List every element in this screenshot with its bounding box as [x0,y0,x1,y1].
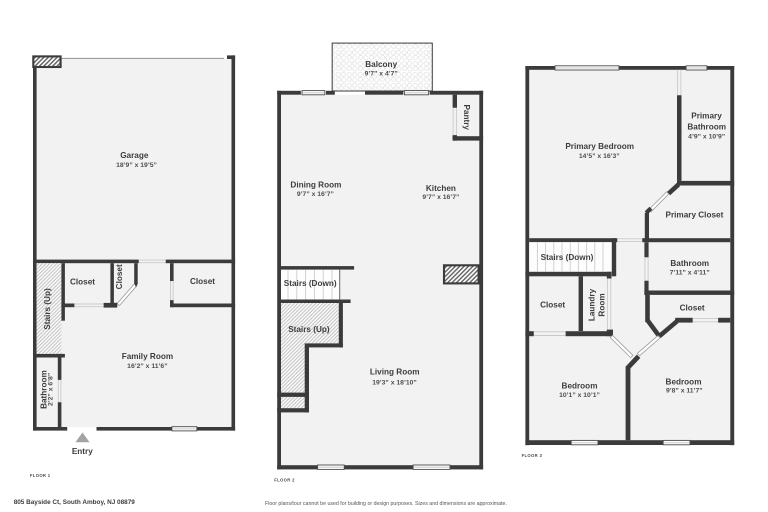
svg-text:Closet: Closet [680,303,705,312]
svg-text:Primary Closet: Primary Closet [666,211,724,220]
svg-text:Stairs (Down): Stairs (Down) [541,253,594,262]
svg-text:Bathroom: Bathroom [687,123,726,132]
svg-text:Primary Bedroom: Primary Bedroom [565,142,634,151]
svg-text:Dining Room: Dining Room [290,181,341,190]
svg-text:14’5” x 16’3”: 14’5” x 16’3” [579,153,620,160]
svg-text:FLOOR 3: FLOOR 3 [522,453,543,458]
svg-text:805 Bayside Ct, South Amboy, N: 805 Bayside Ct, South Amboy, NJ 08879 [14,499,136,506]
svg-text:Garage: Garage [120,151,149,160]
svg-text:9’7” x 16’7”: 9’7” x 16’7” [422,194,459,201]
svg-text:Family Room: Family Room [122,352,173,361]
svg-text:Closet: Closet [190,277,215,286]
svg-text:7’11” x 4’11”: 7’11” x 4’11” [670,269,710,276]
svg-text:16’2” x 11’6”: 16’2” x 11’6” [127,363,167,370]
svg-text:Pantry: Pantry [462,104,471,130]
svg-text:Primary: Primary [691,112,722,121]
svg-text:Stairs (Down): Stairs (Down) [284,279,337,288]
svg-text:Living Room: Living Room [370,367,420,376]
svg-text:Balcony: Balcony [365,60,397,69]
svg-text:4’9” x 10’9”: 4’9” x 10’9” [688,133,725,140]
svg-text:9’8” x 11’7”: 9’8” x 11’7” [666,388,703,395]
svg-text:9’7” x 16’7”: 9’7” x 16’7” [297,191,334,198]
svg-text:FLOOR 2: FLOOR 2 [274,477,295,482]
svg-text:Closet: Closet [115,264,124,289]
svg-text:2’2” x 6’8”: 2’2” x 6’8” [47,373,54,406]
svg-text:10’1” x 10’1”: 10’1” x 10’1” [559,392,600,399]
svg-text:18’9” x 19’5”: 18’9” x 19’5” [116,162,157,169]
svg-text:Bedroom: Bedroom [666,378,702,387]
svg-text:19’3” x 18’10”: 19’3” x 18’10” [372,379,417,386]
svg-text:Bathroom: Bathroom [670,259,709,268]
svg-text:FLOOR 1: FLOOR 1 [30,473,51,478]
svg-text:Kitchen: Kitchen [426,184,456,193]
svg-text:Floor plans/tour cannot be use: Floor plans/tour cannot be used for buil… [265,501,507,507]
svg-text:Stairs (Up): Stairs (Up) [288,325,330,334]
svg-text:9’7” x 4’7”: 9’7” x 4’7” [365,71,398,78]
svg-text:Closet: Closet [70,277,95,286]
svg-text:Closet: Closet [540,300,565,309]
svg-text:Bedroom: Bedroom [562,381,598,390]
svg-text:Laundry: Laundry [588,288,597,321]
svg-text:Entry: Entry [72,447,93,456]
svg-text:Stairs (Up): Stairs (Up) [43,288,52,330]
svg-text:Room: Room [597,293,606,316]
